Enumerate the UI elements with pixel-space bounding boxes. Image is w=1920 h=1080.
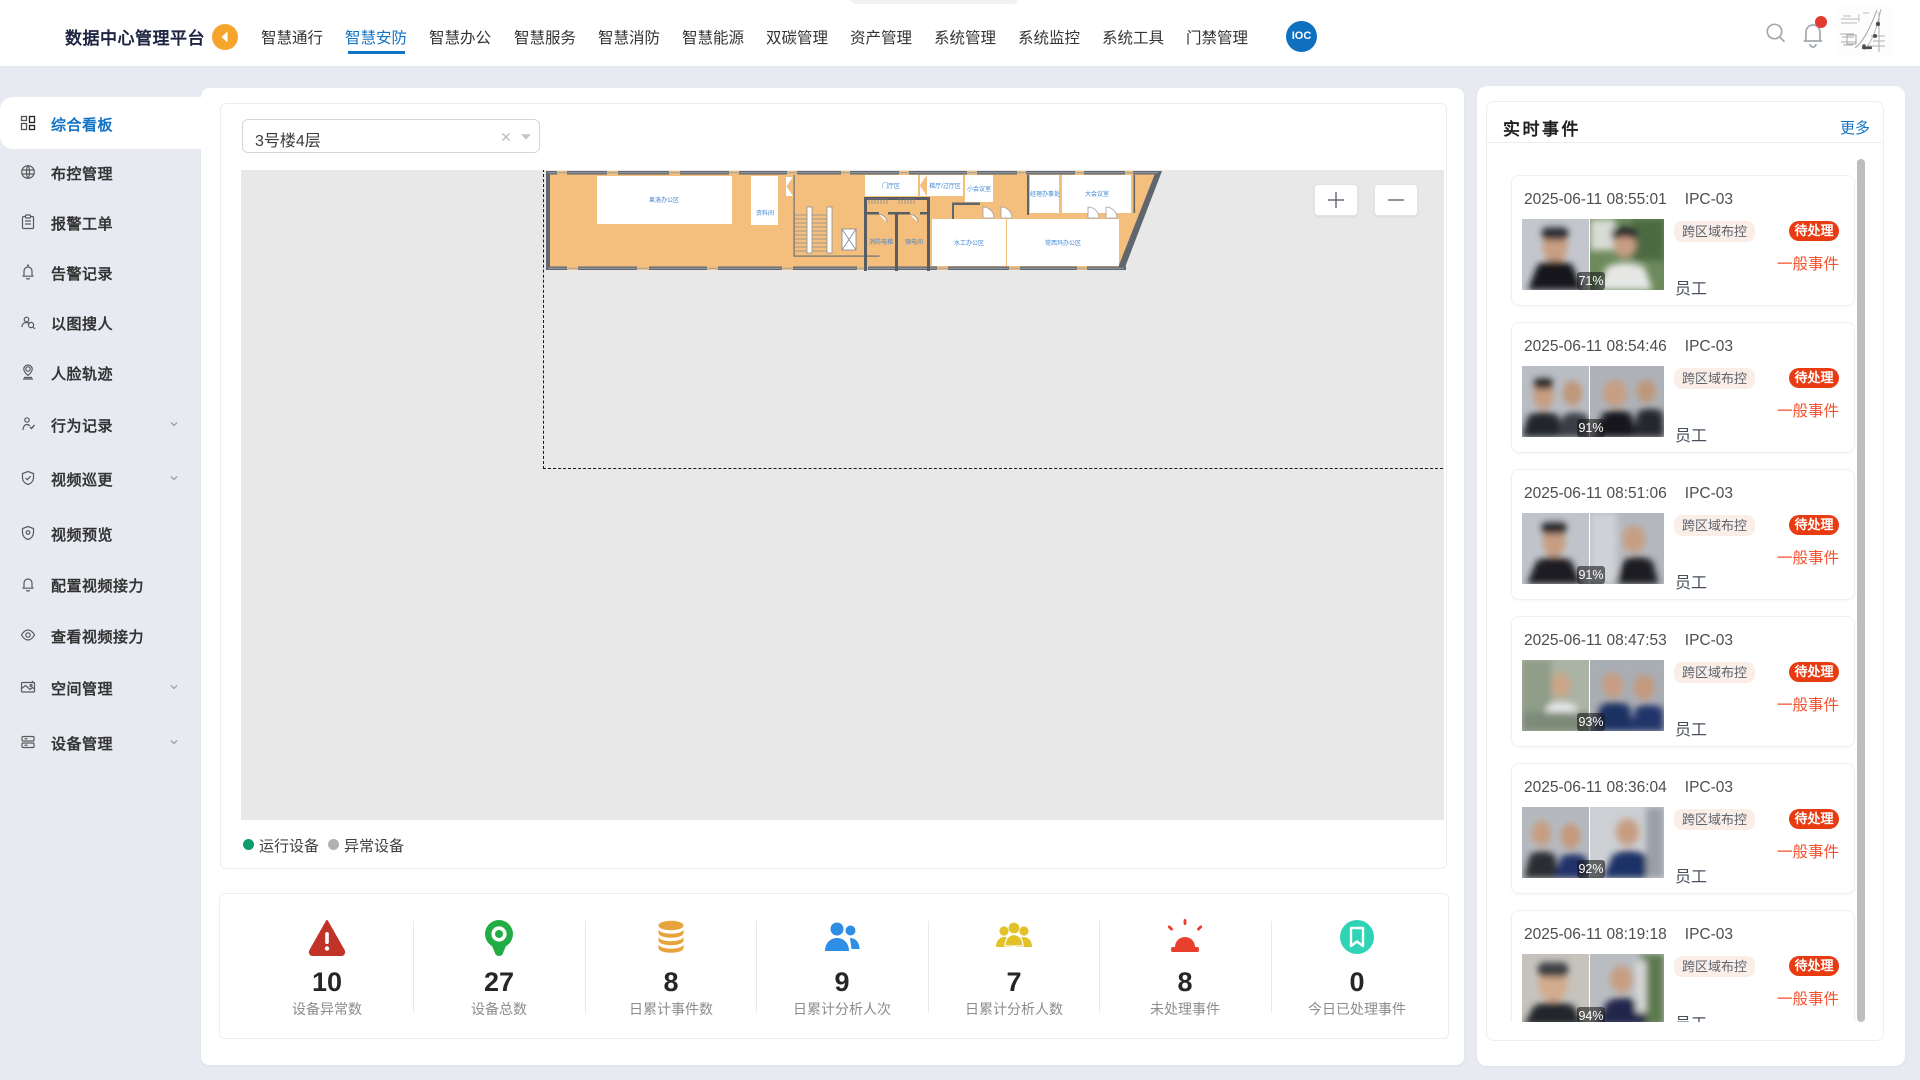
svg-text:常西玛办公区: 常西玛办公区 — [1045, 239, 1081, 247]
svg-text:梯厅/过厅区: 梯厅/过厅区 — [929, 182, 961, 190]
svg-text:大会议室: 大会议室 — [1085, 190, 1109, 198]
svg-text:门厅区: 门厅区 — [882, 182, 900, 190]
svg-text:强电间: 强电间 — [905, 238, 923, 246]
svg-text:经理办事处: 经理办事处 — [1030, 190, 1060, 198]
svg-text:消防电梯: 消防电梯 — [869, 238, 893, 246]
svg-text:小会议室: 小会议室 — [967, 185, 991, 193]
svg-text:水工办公区: 水工办公区 — [954, 239, 984, 247]
svg-text:资料间: 资料间 — [756, 209, 774, 217]
svg-text:果洛办公区: 果洛办公区 — [649, 196, 679, 204]
